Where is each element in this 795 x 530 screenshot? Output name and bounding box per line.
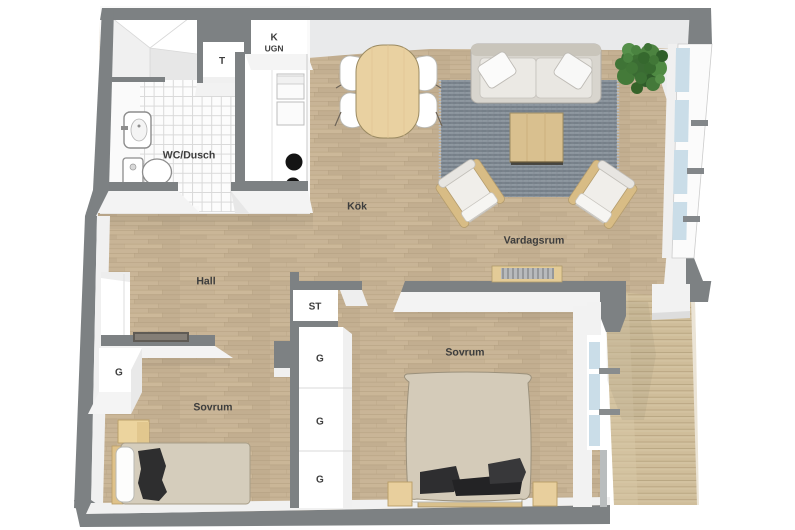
svg-text:Hall: Hall	[196, 275, 215, 287]
svg-text:Sovrum: Sovrum	[445, 347, 484, 359]
svg-text:G: G	[316, 416, 324, 427]
svg-text:Vardagsrum: Vardagsrum	[504, 235, 565, 247]
svg-text:Kök: Kök	[347, 200, 367, 212]
svg-text:G: G	[115, 367, 123, 378]
svg-text:T: T	[219, 56, 225, 67]
svg-text:Sovrum: Sovrum	[193, 401, 232, 413]
svg-text:ST: ST	[309, 301, 322, 312]
svg-text:G: G	[316, 353, 324, 364]
svg-text:UGN: UGN	[265, 43, 284, 53]
svg-text:WC/Dusch: WC/Dusch	[163, 149, 216, 161]
svg-text:K: K	[270, 32, 278, 43]
svg-text:G: G	[316, 474, 324, 485]
